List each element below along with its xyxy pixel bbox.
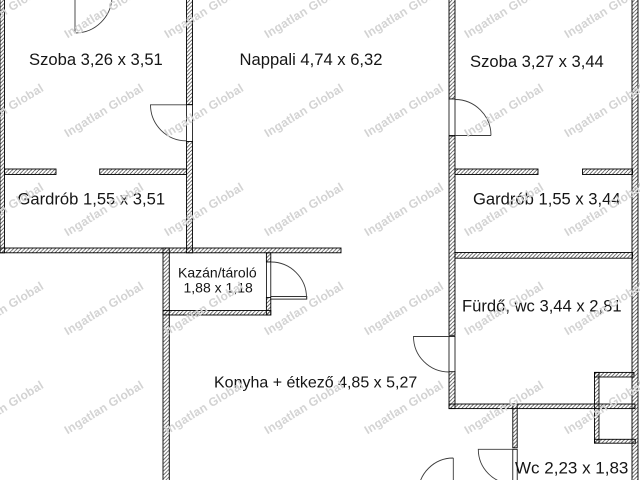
svg-text:Szoba 3,27 x 3,44: Szoba 3,27 x 3,44 bbox=[470, 52, 604, 71]
svg-text:Kazán/tároló: Kazán/tároló bbox=[178, 265, 257, 281]
svg-text:Wc 2,23 x 1,83: Wc 2,23 x 1,83 bbox=[515, 459, 628, 478]
svg-text:Nappali 4,74 x 6,32: Nappali 4,74 x 6,32 bbox=[240, 50, 383, 69]
svg-text:Szoba 3,26 x 3,51: Szoba 3,26 x 3,51 bbox=[29, 50, 163, 69]
